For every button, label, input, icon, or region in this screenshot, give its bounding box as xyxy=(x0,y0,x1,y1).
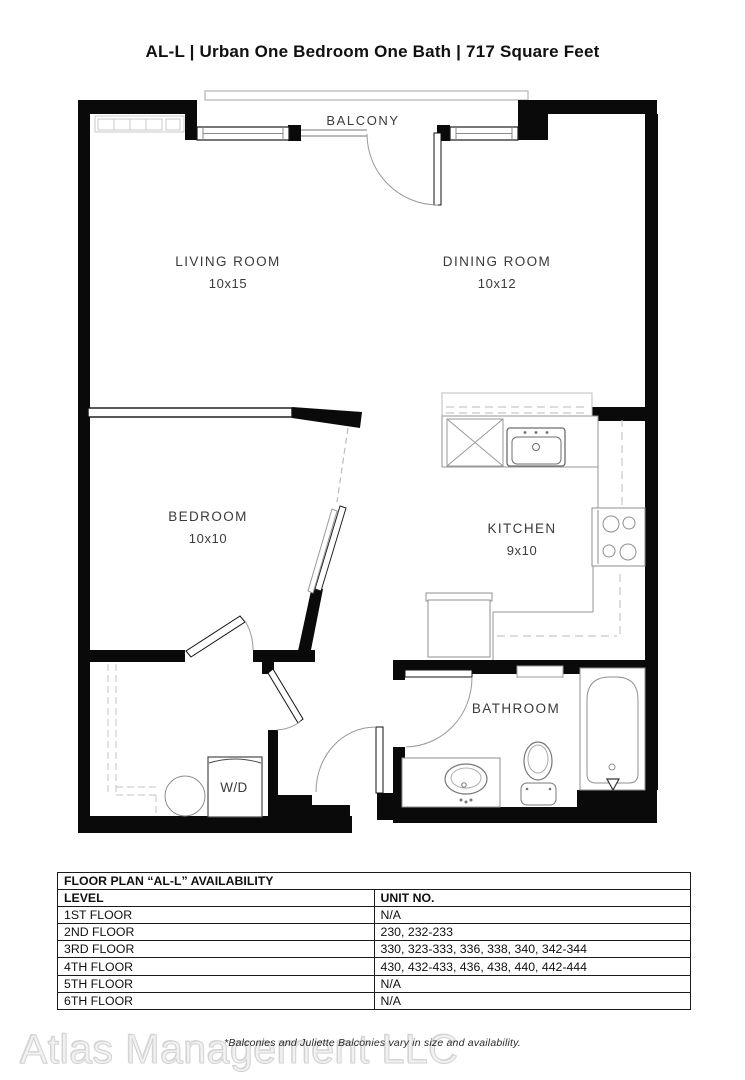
vanity-faucet-dot xyxy=(465,801,468,804)
bedroom-dims: 10x10 xyxy=(189,531,227,546)
units-cell: N/A xyxy=(374,907,691,924)
wall-bedroom-south-left xyxy=(88,650,185,662)
fridge xyxy=(428,600,490,657)
column-header-unit-no: UNIT NO. xyxy=(374,890,691,907)
closet-rod-dashed xyxy=(108,664,158,814)
entry-door-swing-arc xyxy=(316,727,376,792)
wall-bedroom-angled-bottom xyxy=(298,586,323,655)
wall-bathroom-south xyxy=(393,807,580,823)
sink-faucet-dot xyxy=(524,431,527,434)
stove-burner xyxy=(623,517,635,529)
wall-top-right xyxy=(518,100,657,114)
bathtub-basin xyxy=(587,677,638,783)
entry-door-leaf xyxy=(376,727,383,793)
balcony-rail xyxy=(205,91,528,100)
units-cell: 330, 323-333, 336, 338, 340, 342-344 xyxy=(374,941,691,958)
units-cell: 230, 232-233 xyxy=(374,924,691,941)
wall-entry-lower xyxy=(268,805,350,817)
living-room-label: LIVING ROOM xyxy=(175,254,280,269)
level-cell: 5TH FLOOR xyxy=(58,975,375,992)
watermark-text: Atlas Management LLC xyxy=(20,1026,458,1073)
wall-bedroom-angled-top xyxy=(292,407,362,428)
balcony-door-post-left xyxy=(288,125,301,141)
dining-room-label: DINING ROOM xyxy=(443,254,551,269)
table-row: 5TH FLOOR N/A xyxy=(58,975,691,992)
table-row: 2ND FLOOR 230, 232-233 xyxy=(58,924,691,941)
bedroom-door-swing-arc xyxy=(245,621,253,650)
wall-step-left xyxy=(185,114,197,140)
wall-step-right xyxy=(518,114,548,140)
bathroom-fixtures xyxy=(402,666,645,807)
wall-south-left xyxy=(78,816,352,833)
balcony-opening-lines xyxy=(301,130,367,136)
table-header-row: LEVEL UNIT NO. xyxy=(58,890,691,907)
toilet-tank xyxy=(521,783,556,805)
bathroom-door-leaf xyxy=(405,670,472,677)
wall-niche xyxy=(517,666,563,677)
table-row: 6TH FLOOR N/A xyxy=(58,992,691,1009)
wall-east xyxy=(645,114,658,790)
counter-edges xyxy=(493,467,598,660)
bathroom-label: BATHROOM xyxy=(472,701,560,716)
washer-dryer-label: W/D xyxy=(220,780,247,795)
wall-entry-jamb xyxy=(377,793,393,820)
balcony-door-leaf xyxy=(434,133,441,205)
dining-room-dims: 10x12 xyxy=(478,276,516,291)
table-row: 1ST FLOOR N/A xyxy=(58,907,691,924)
wall-bathroom-west-stub xyxy=(393,660,405,680)
toilet-bolt-dot xyxy=(526,788,529,791)
availability-table: FLOOR PLAN “AL-L” AVAILABILITY LEVEL UNI… xyxy=(57,872,691,1010)
wall-top-left xyxy=(78,100,197,114)
wall-corner-southeast xyxy=(577,790,657,823)
wall-hall-west xyxy=(268,730,278,797)
stove-burner xyxy=(620,544,636,560)
water-heater xyxy=(165,776,205,816)
wall-kitchen-dining-stub xyxy=(592,407,652,421)
level-cell: 6TH FLOOR xyxy=(58,992,375,1009)
kitchen-label: KITCHEN xyxy=(487,521,556,536)
floor-plan-drawing: BALCONY LIVING ROOM 10x15 DINING ROOM 10… xyxy=(0,0,745,860)
kitchen-dims: 9x10 xyxy=(507,543,538,558)
table-row: 3RD FLOOR 330, 323-333, 336, 338, 340, 3… xyxy=(58,941,691,958)
windows xyxy=(197,127,518,140)
table-title-row: FLOOR PLAN “AL-L” AVAILABILITY xyxy=(58,873,691,890)
balcony xyxy=(205,91,528,100)
wall-bedroom-south-right xyxy=(253,650,315,662)
column-header-level: LEVEL xyxy=(58,890,375,907)
table-row: 4TH FLOOR 430, 432-433, 436, 438, 440, 4… xyxy=(58,958,691,975)
balcony-disclaimer-footnote: *Balconies and Juliette Balconies vary i… xyxy=(0,1037,745,1049)
units-cell: N/A xyxy=(374,992,691,1009)
units-cell: 430, 432-433, 436, 438, 440, 442-444 xyxy=(374,958,691,975)
bathroom-door-swing-arc xyxy=(406,677,472,747)
level-cell: 1ST FLOOR xyxy=(58,907,375,924)
sliding-door-track-dashed xyxy=(337,428,348,502)
upper-cabinets-dashed xyxy=(446,407,588,413)
table-title: FLOOR PLAN “AL-L” AVAILABILITY xyxy=(58,873,691,890)
sink-faucet-dot xyxy=(546,431,549,434)
heater-grill-lines xyxy=(114,119,146,130)
living-room-dims: 10x15 xyxy=(209,276,247,291)
sink-faucet-dot xyxy=(535,431,538,434)
baseboard-heater xyxy=(95,116,184,132)
bedroom-label: BEDROOM xyxy=(168,509,248,524)
heater-end-box xyxy=(166,119,180,130)
vanity-faucet-dot xyxy=(470,799,473,802)
wall-living-bedroom-divider xyxy=(88,408,292,417)
balcony-door-swing-arc xyxy=(367,134,438,205)
closet-door-leaf xyxy=(268,669,303,723)
level-cell: 2ND FLOOR xyxy=(58,924,375,941)
units-cell: N/A xyxy=(374,975,691,992)
stove-burner xyxy=(603,516,619,532)
wall-west xyxy=(78,100,90,833)
level-cell: 4TH FLOOR xyxy=(58,958,375,975)
vanity-faucet-dot xyxy=(460,799,463,802)
stove xyxy=(592,508,645,566)
stove-burner xyxy=(603,545,615,557)
doors xyxy=(186,133,472,793)
floor-plan-sheet: AL-L | Urban One Bedroom One Bath | 717 … xyxy=(0,0,745,1080)
level-cell: 3RD FLOOR xyxy=(58,941,375,958)
toilet-bolt-dot xyxy=(549,788,552,791)
bedroom-door-leaf xyxy=(186,616,245,657)
balcony-label: BALCONY xyxy=(326,113,399,128)
